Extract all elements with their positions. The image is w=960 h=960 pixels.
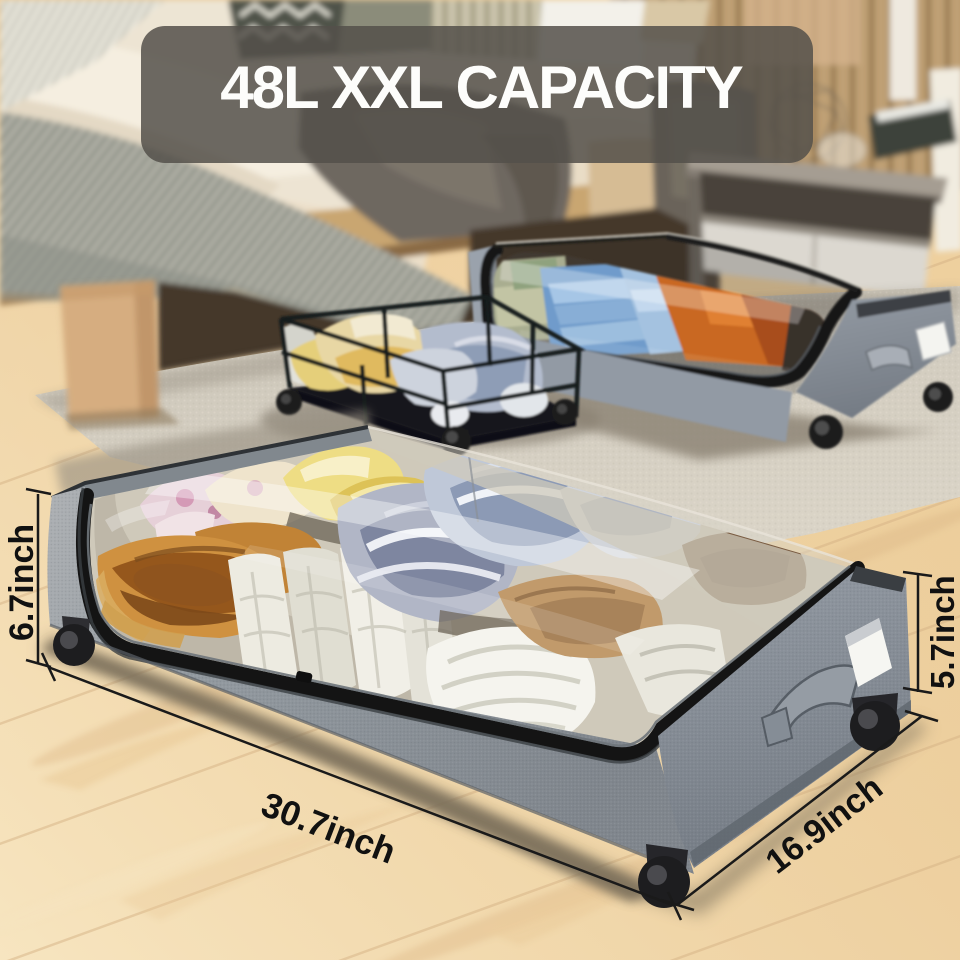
svg-text:48L XXL CAPACITY: 48L XXL CAPACITY [220, 54, 743, 121]
svg-text:6.7inch: 6.7inch [3, 524, 41, 641]
svg-text:5.7inch: 5.7inch [924, 575, 960, 689]
